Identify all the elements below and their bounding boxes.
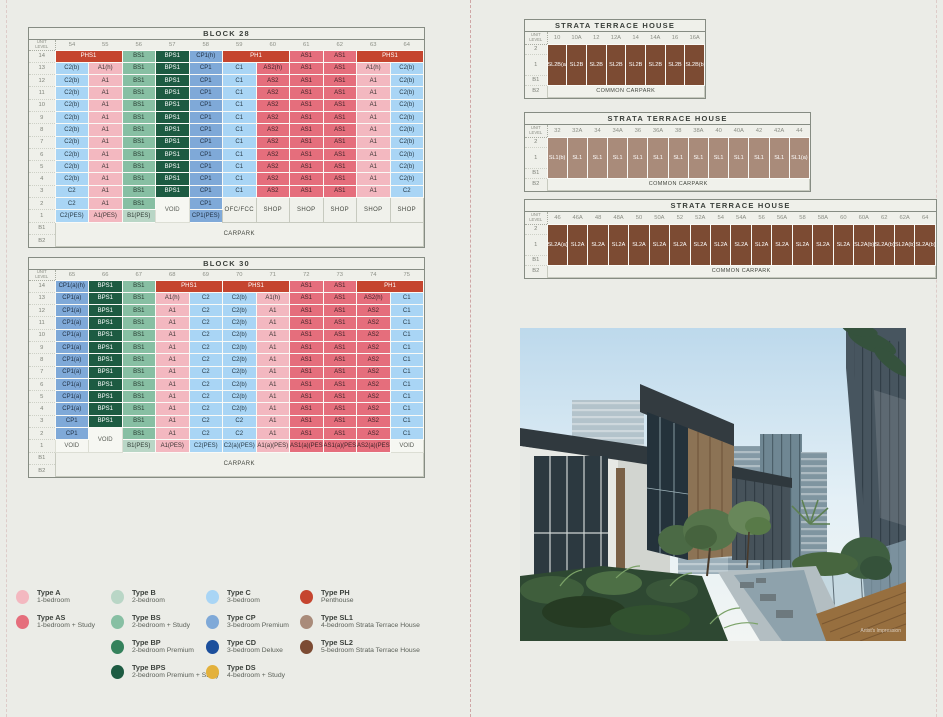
legend-item: Type SL14-bedroom Strata Terrace House: [300, 613, 420, 638]
level-label: 3: [29, 415, 55, 427]
unit-number: 58: [792, 212, 812, 224]
level-label: 1: [525, 234, 547, 255]
unit-cell: A1: [89, 185, 123, 197]
legend-item: Type AS1-bedroom + Study: [16, 613, 95, 638]
unit-cell: A1: [357, 87, 391, 99]
unit-cell: C2: [189, 403, 223, 415]
unit-cell: SL2B: [606, 44, 626, 85]
unit-cell: SL2A(b): [915, 224, 936, 265]
level-label: B1: [29, 452, 55, 464]
unit-cell: SL1: [709, 137, 729, 178]
unit-cell: C2: [189, 305, 223, 317]
unit-cell: C2(b): [390, 173, 424, 185]
unit-cell: C1: [223, 161, 257, 173]
unit-number: 36: [628, 125, 648, 137]
unit-cell: A1: [256, 428, 290, 440]
unit-cell: BS1: [122, 173, 156, 185]
unit-cell: A1: [89, 198, 123, 210]
legend-type-code: Type C: [227, 588, 289, 597]
strata-terrace-house-table-1: STRATA TERRACE HOUSEUNIT LEVEL1010A1212A…: [524, 19, 706, 99]
unit-cell: CP1: [189, 148, 223, 160]
unit-cell: SL1: [749, 137, 769, 178]
unit-cell: CP1(a): [55, 366, 89, 378]
unit-cell: AS1: [290, 329, 324, 341]
unit-number: 42A: [769, 125, 789, 137]
left-crop-dash-line: [6, 0, 7, 717]
level-label: B2: [525, 178, 547, 190]
unit-cell: CP1(a)(h): [55, 280, 89, 292]
unit-cell: SL2A(b): [854, 224, 874, 265]
legend-type-description: 3-bedroom Deluxe: [227, 647, 289, 655]
unit-cell: SHOP: [357, 198, 391, 223]
unit-cell: PH1: [357, 280, 424, 292]
unit-cell: AS2: [256, 136, 290, 148]
unit-cell: AS1: [323, 428, 357, 440]
legend-type-description: 4-bedroom + Study: [227, 672, 289, 680]
unit-cell: CP1: [189, 75, 223, 87]
level-label: 2: [525, 137, 547, 147]
unit-cell: AS2: [256, 87, 290, 99]
unit-cell: BS1: [122, 161, 156, 173]
table-title: STRATA TERRACE HOUSE: [525, 113, 810, 125]
level-label: 2: [29, 198, 55, 210]
unit-cell: BS1: [122, 366, 156, 378]
unit-cell: BS1: [122, 124, 156, 136]
unit-number: 62A: [894, 212, 914, 224]
unit-cell: BS1: [122, 329, 156, 341]
unit-cell: C2: [55, 185, 89, 197]
unit-cell: CP1(a): [55, 403, 89, 415]
unit-cell: A1: [89, 124, 123, 136]
unit-cell: C1: [223, 173, 257, 185]
unit-number: 54A: [731, 212, 751, 224]
unit-cell: SL2A(b): [874, 224, 894, 265]
unit-cell: SHOP: [323, 198, 357, 223]
unit-cell: SL2A: [588, 224, 608, 265]
unit-number: 58: [189, 40, 223, 50]
unit-cell: AS2: [357, 366, 391, 378]
unit-cell: PHS1: [55, 50, 122, 62]
unit-cell: A1: [89, 136, 123, 148]
level-label: 5: [29, 391, 55, 403]
unit-cell: C2(b): [390, 99, 424, 111]
unit-cell: SL2A: [629, 224, 649, 265]
strata-terrace-house-table-3: STRATA TERRACE HOUSEUNIT LEVEL4646A4848A…: [524, 199, 937, 279]
unit-cell: BPS1: [156, 87, 190, 99]
legend-color-swatch: [206, 615, 219, 629]
unit-cell: C2(PES): [55, 210, 89, 222]
unit-cell: AS1: [323, 317, 357, 329]
unit-number: 52: [670, 212, 690, 224]
unit-cell: C1: [390, 354, 424, 366]
unit-cell: A1: [256, 329, 290, 341]
unit-cell: C2(b): [55, 148, 89, 160]
legend-color-swatch: [206, 590, 219, 604]
unit-number: 16: [665, 32, 685, 44]
unit-cell: SL2A: [649, 224, 669, 265]
unit-cell: SL2A: [833, 224, 853, 265]
level-label: 4: [29, 173, 55, 185]
unit-number: 59: [223, 40, 257, 50]
unit-number: 66: [89, 270, 123, 280]
artist-impression-caption: Artist's Impression: [860, 628, 901, 634]
unit-cell: C2(PES): [189, 440, 223, 452]
center-fold-dash-line: [470, 0, 471, 717]
unit-level-header: UNIT LEVEL: [525, 125, 547, 137]
legend-type-description: 3-bedroom Premium: [227, 622, 289, 630]
unit-number: 73: [323, 270, 357, 280]
unit-level-header: UNIT LEVEL: [525, 212, 547, 224]
table-title: BLOCK 28: [29, 28, 424, 40]
unit-cell: C2(b): [223, 292, 257, 304]
unit-number: 50: [629, 212, 649, 224]
unit-cell: C2: [189, 366, 223, 378]
building-rendering-photo: Artist's Impression: [520, 328, 906, 641]
unit-cell: A1: [357, 136, 391, 148]
unit-cell: AS1: [290, 161, 324, 173]
unit-number: 14: [626, 32, 646, 44]
unit-number: 40: [709, 125, 729, 137]
unit-cell: BS1: [122, 391, 156, 403]
unit-cell: AS1: [290, 415, 324, 427]
unit-cell: AS2(a)(PES): [357, 440, 391, 452]
legend-item: Type SL25-bedroom Strata Terrace House: [300, 638, 420, 663]
unit-cell: AS1: [290, 124, 324, 136]
unit-cell: A1(h): [357, 62, 391, 74]
level-label: 14: [29, 50, 55, 62]
unit-cell: AS2(h): [357, 292, 391, 304]
unit-number: 58A: [813, 212, 833, 224]
level-label: 14: [29, 280, 55, 292]
unit-cell: CP1(a): [55, 317, 89, 329]
unit-cell: AS1(a)(PES): [290, 440, 324, 452]
unit-cell: C2(b): [55, 173, 89, 185]
unit-number: 54: [55, 40, 89, 50]
unit-cell: C2(b): [55, 136, 89, 148]
level-label: 7: [29, 366, 55, 378]
unit-cell: AS2: [357, 341, 391, 353]
unit-cell: AS1: [323, 173, 357, 185]
unit-cell: C2: [189, 428, 223, 440]
unit-cell: SL1: [587, 137, 607, 178]
unit-cell: CP1(a): [55, 354, 89, 366]
unit-cell: C2: [189, 317, 223, 329]
unit-number: 32A: [567, 125, 587, 137]
unit-number: 56A: [772, 212, 792, 224]
legend-color-swatch: [111, 640, 124, 654]
unit-grid: UNIT LEVEL1010A1212A1414A1616A2SL2B(a)SL…: [525, 32, 705, 98]
unit-cell: AS1: [323, 280, 357, 292]
unit-cell: AS1: [290, 366, 324, 378]
unit-number: 56: [751, 212, 771, 224]
unit-number: 60: [833, 212, 853, 224]
unit-cell: A1: [357, 124, 391, 136]
unit-cell: SL1(b): [547, 137, 567, 178]
legend-color-swatch: [111, 615, 124, 629]
unit-cell: C1: [223, 111, 257, 123]
unit-number: 52A: [690, 212, 710, 224]
unit-cell: BPS1: [89, 317, 123, 329]
legend-type-description: 4-bedroom Strata Terrace House: [321, 622, 420, 630]
unit-cell: CP1(a): [55, 329, 89, 341]
unit-number: 38A: [688, 125, 708, 137]
unit-cell: BPS1: [156, 99, 190, 111]
unit-cell: VOID: [55, 440, 89, 452]
unit-cell: AS1: [323, 354, 357, 366]
unit-cell: CARPARK: [55, 452, 424, 477]
unit-cell: C2(b): [390, 87, 424, 99]
unit-cell: A1: [89, 148, 123, 160]
legend-type-code: Type DS: [227, 663, 289, 672]
unit-cell: SL2A: [792, 224, 812, 265]
unit-cell: BPS1: [89, 354, 123, 366]
unit-level-header: UNIT LEVEL: [525, 32, 547, 44]
legend-type-code: Type CD: [227, 638, 289, 647]
legend-color-swatch: [111, 590, 124, 604]
unit-cell: A1: [357, 148, 391, 160]
unit-cell: C2: [55, 198, 89, 210]
level-label: 12: [29, 75, 55, 87]
unit-cell: AS1: [290, 75, 324, 87]
unit-cell: SHOP: [390, 198, 424, 223]
unit-cell: SL2B: [586, 44, 606, 85]
unit-cell: C2: [189, 341, 223, 353]
unit-cell: SL2B: [567, 44, 587, 85]
table-title: BLOCK 30: [29, 258, 424, 270]
legend-type-code: Type PH: [321, 588, 420, 597]
legend-type-description: 1-bedroom + Study: [37, 622, 95, 630]
unit-cell: SL2A: [731, 224, 751, 265]
unit-cell: A1: [156, 391, 190, 403]
legend-column-b: Type B2-bedroomType BS2-bedroom + StudyT…: [111, 588, 219, 688]
level-label: 1: [525, 147, 547, 168]
unit-cell: AS1: [323, 99, 357, 111]
unit-cell: C2(b): [390, 62, 424, 74]
legend-item: Type B2-bedroom: [111, 588, 219, 613]
unit-number: 72: [290, 270, 324, 280]
unit-cell: BPS1: [156, 111, 190, 123]
unit-number: 69: [189, 270, 223, 280]
unit-number: 48: [588, 212, 608, 224]
unit-cell: C2: [390, 185, 424, 197]
legend-column-a: Type A1-bedroomType AS1-bedroom + Study: [16, 588, 95, 638]
unit-cell: CP1(a): [55, 292, 89, 304]
legend-color-swatch: [300, 615, 313, 629]
unit-cell: C2(b): [223, 329, 257, 341]
unit-cell: C2(b): [55, 62, 89, 74]
unit-cell: AS2: [357, 428, 391, 440]
unit-cell: C2(b): [223, 354, 257, 366]
unit-cell: AS1: [323, 75, 357, 87]
unit-cell: BS1: [122, 136, 156, 148]
unit-cell: C2: [189, 354, 223, 366]
unit-cell: C2(b): [390, 111, 424, 123]
unit-number: 12: [586, 32, 606, 44]
unit-cell: A1: [156, 428, 190, 440]
unit-cell: PHS1: [357, 50, 424, 62]
unit-number: 14A: [645, 32, 665, 44]
unit-cell: C1: [390, 428, 424, 440]
legend-item: Type BS2-bedroom + Study: [111, 613, 219, 638]
unit-cell: SL2B(a): [547, 44, 567, 85]
unit-cell: AS2: [357, 354, 391, 366]
unit-cell: A1: [89, 111, 123, 123]
unit-cell: A1: [357, 99, 391, 111]
level-label: B2: [525, 265, 547, 277]
legend-type-code: Type A: [37, 588, 95, 597]
legend-type-code: Type AS: [37, 613, 95, 622]
unit-number: 12A: [606, 32, 626, 44]
unit-cell: AS1: [323, 366, 357, 378]
unit-cell: PH1: [223, 50, 290, 62]
building-rendering-illustration: [520, 328, 906, 641]
unit-cell: SL2A(b): [894, 224, 914, 265]
legend-color-swatch: [206, 640, 219, 654]
unit-cell: AS1: [323, 305, 357, 317]
unit-cell: C2(b): [55, 124, 89, 136]
block-30-stack-table: BLOCK 30UNIT LEVEL6566676869707172737475…: [28, 257, 425, 478]
unit-cell: A1: [256, 378, 290, 390]
unit-cell: CP1(a): [55, 391, 89, 403]
unit-cell: C2(b): [390, 148, 424, 160]
unit-cell: SL1: [668, 137, 688, 178]
level-label: B1: [525, 255, 547, 265]
level-label: 11: [29, 317, 55, 329]
unit-cell: VOID: [156, 198, 190, 223]
unit-cell: AS1: [290, 136, 324, 148]
unit-cell: SL1: [648, 137, 668, 178]
unit-number: 54: [711, 212, 731, 224]
unit-cell: B1(PES): [122, 210, 156, 222]
unit-number: 42: [749, 125, 769, 137]
level-label: 13: [29, 62, 55, 74]
unit-cell: C2(b): [223, 341, 257, 353]
unit-cell: C2(b): [223, 378, 257, 390]
unit-cell: CP1: [189, 185, 223, 197]
unit-cell: AS2: [256, 161, 290, 173]
unit-cell: A1(PES): [156, 440, 190, 452]
unit-cell: A1: [256, 317, 290, 329]
unit-number: 65: [55, 270, 89, 280]
unit-cell: C1: [390, 391, 424, 403]
unit-cell: BPS1: [89, 305, 123, 317]
unit-cell: C1: [390, 378, 424, 390]
unit-cell: CP1(a): [55, 305, 89, 317]
unit-cell: AS1: [323, 62, 357, 74]
unit-cell: C2: [189, 378, 223, 390]
unit-cell: C1: [390, 292, 424, 304]
unit-grid: UNIT LEVEL545556575859606162636414PHS1BS…: [29, 40, 424, 247]
unit-cell: BPS1: [156, 62, 190, 74]
unit-cell: CP1: [189, 62, 223, 74]
unit-cell: SL2B: [626, 44, 646, 85]
unit-cell: AS2: [256, 148, 290, 160]
level-label: 8: [29, 354, 55, 366]
unit-cell: SL2A: [751, 224, 771, 265]
unit-cell: AS1: [290, 305, 324, 317]
legend-color-swatch: [300, 640, 313, 654]
unit-cell: AS2: [256, 124, 290, 136]
legend-type-description: 1-bedroom: [37, 597, 95, 605]
unit-cell: A1: [156, 415, 190, 427]
legend-item: Type A1-bedroom: [16, 588, 95, 613]
unit-number: 60: [256, 40, 290, 50]
table-title: STRATA TERRACE HOUSE: [525, 20, 705, 32]
unit-cell: BPS1: [89, 292, 123, 304]
unit-grid: UNIT LEVEL4646A4848A5050A5252A5454A5656A…: [525, 212, 936, 278]
unit-number: 44: [789, 125, 809, 137]
block-28-stack-table: BLOCK 28UNIT LEVEL5455565758596061626364…: [28, 27, 425, 248]
unit-cell: SL1: [769, 137, 789, 178]
unit-cell: BPS1: [89, 366, 123, 378]
unit-cell: A1: [256, 341, 290, 353]
unit-cell: AS1: [290, 317, 324, 329]
unit-cell: BS1: [122, 50, 156, 62]
level-label: 1: [29, 440, 55, 452]
unit-cell: A1: [89, 173, 123, 185]
legend-type-description: 3-bedroom: [227, 597, 289, 605]
unit-cell: BPS1: [156, 124, 190, 136]
level-label: 2: [29, 428, 55, 440]
unit-cell: AS2: [256, 173, 290, 185]
unit-cell: A1: [256, 366, 290, 378]
unit-cell: C1: [390, 366, 424, 378]
unit-cell: AS1: [323, 161, 357, 173]
unit-cell: AS2: [357, 403, 391, 415]
unit-cell: CP1: [189, 99, 223, 111]
unit-cell: SL1: [567, 137, 587, 178]
level-label: 8: [29, 124, 55, 136]
unit-cell: AS1: [323, 292, 357, 304]
unit-cell: BPS1: [156, 75, 190, 87]
unit-cell: SL2A: [608, 224, 628, 265]
legend-item: Type CP3-bedroom Premium: [206, 613, 289, 638]
unit-cell: BS1: [122, 403, 156, 415]
unit-number: 50A: [649, 212, 669, 224]
unit-cell: BS1: [122, 292, 156, 304]
unit-cell: AS1: [323, 341, 357, 353]
unit-cell: C2(b): [390, 75, 424, 87]
unit-cell: A1: [357, 173, 391, 185]
unit-cell: AS1: [323, 391, 357, 403]
level-label: B2: [29, 464, 55, 476]
unit-cell: COMMON CARPARK: [547, 265, 936, 277]
unit-cell: COMMON CARPARK: [547, 178, 810, 190]
unit-cell: BS1: [122, 354, 156, 366]
unit-cell: BS1: [122, 305, 156, 317]
unit-cell: C1: [390, 403, 424, 415]
unit-cell: A1: [256, 305, 290, 317]
unit-cell: AS1: [323, 329, 357, 341]
unit-number: 71: [256, 270, 290, 280]
unit-cell: C1: [223, 75, 257, 87]
unit-cell: SL1: [688, 137, 708, 178]
unit-cell: BS1: [122, 317, 156, 329]
unit-cell: C2(b): [55, 99, 89, 111]
unit-cell: AS2: [357, 378, 391, 390]
unit-cell: COMMON CARPARK: [547, 85, 705, 97]
unit-cell: SHOP: [290, 198, 324, 223]
unit-cell: A1(a)(PES): [256, 440, 290, 452]
legend-column-c: Type C3-bedroomType CP3-bedroom PremiumT…: [206, 588, 289, 688]
unit-cell: A1: [156, 366, 190, 378]
unit-cell: A1: [357, 185, 391, 197]
unit-cell: BS1: [122, 378, 156, 390]
unit-cell: AS1: [323, 403, 357, 415]
unit-cell: A1: [156, 354, 190, 366]
unit-number: 64: [915, 212, 936, 224]
unit-cell: AS2: [357, 317, 391, 329]
